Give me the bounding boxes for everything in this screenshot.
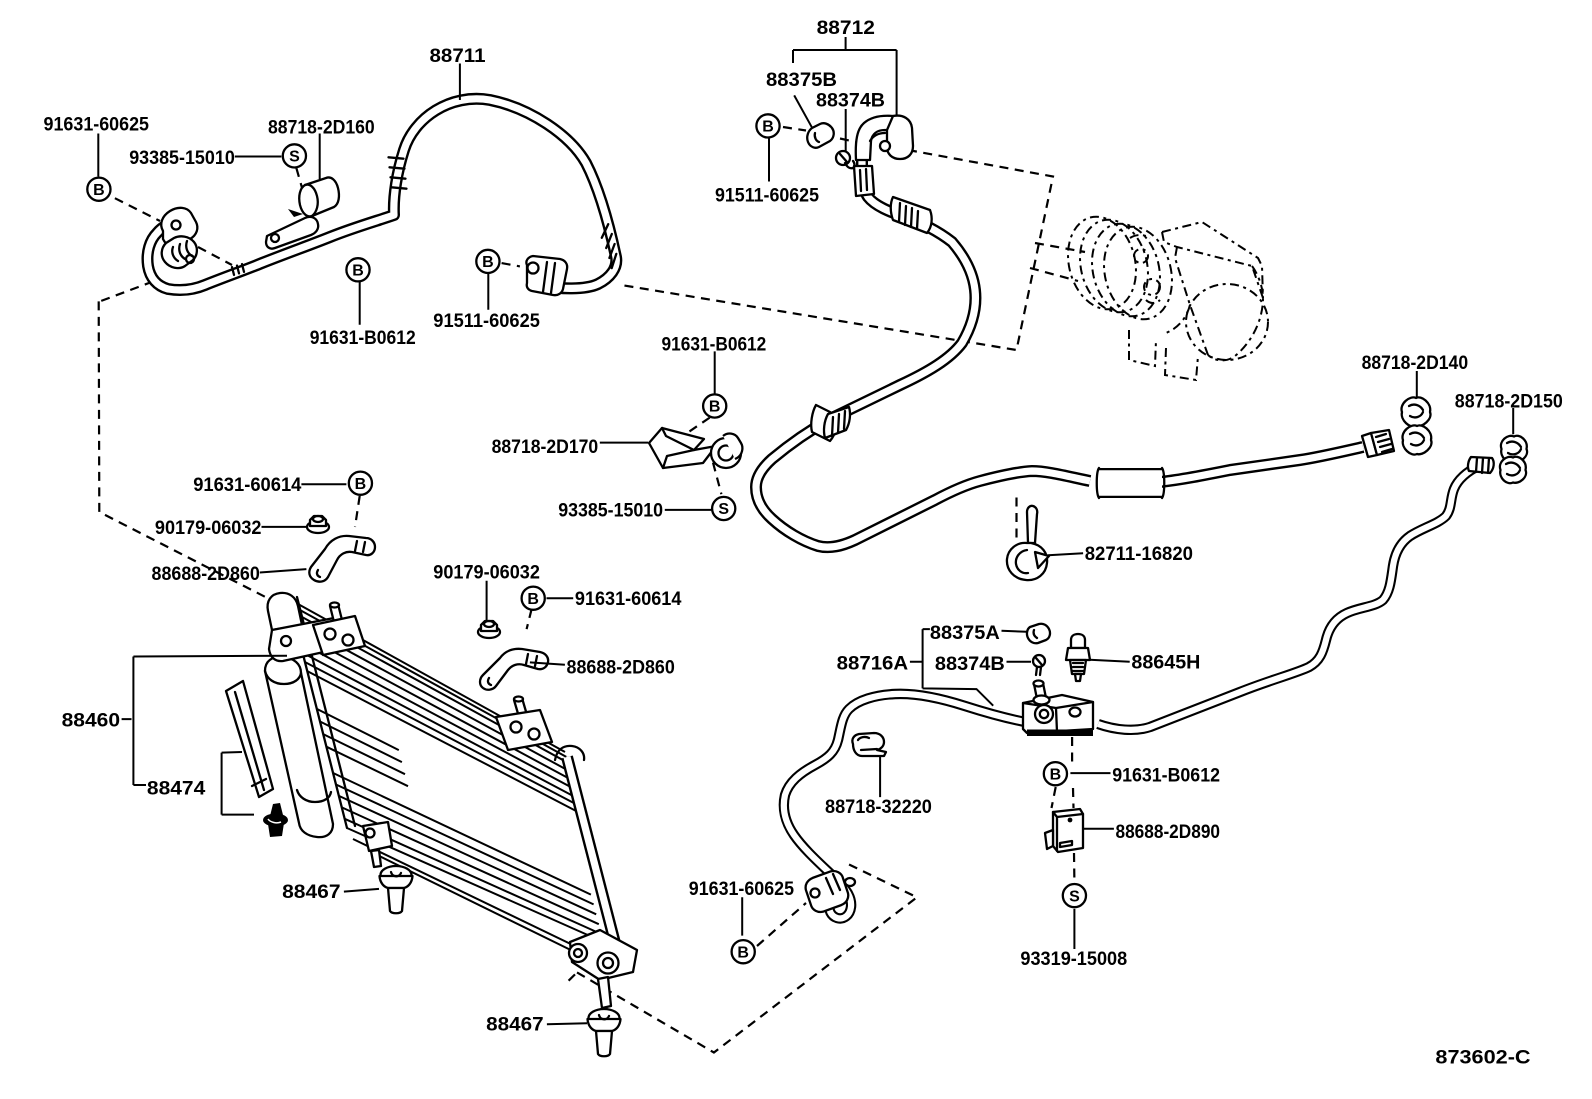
svg-text:B: B	[482, 254, 494, 271]
svg-text:88467: 88467	[282, 881, 341, 903]
svg-text:S: S	[289, 149, 300, 166]
svg-text:93385-15010: 93385-15010	[129, 147, 235, 169]
svg-text:90179-06032: 90179-06032	[433, 561, 540, 583]
svg-text:88374B: 88374B	[935, 653, 1005, 675]
svg-text:88474: 88474	[147, 778, 206, 800]
svg-text:88374B: 88374B	[816, 90, 885, 112]
svg-text:S: S	[1069, 888, 1080, 905]
svg-text:B: B	[737, 944, 749, 961]
svg-text:93385-15010: 93385-15010	[558, 500, 663, 522]
svg-text:88711: 88711	[430, 45, 486, 67]
svg-text:88375B: 88375B	[766, 69, 837, 91]
svg-text:B: B	[762, 119, 774, 136]
svg-text:91631-60614: 91631-60614	[193, 474, 301, 496]
svg-text:88375A: 88375A	[930, 622, 1000, 644]
svg-text:B: B	[93, 182, 105, 199]
svg-text:B: B	[355, 476, 367, 493]
svg-text:88688-2D890: 88688-2D890	[1116, 821, 1221, 843]
svg-text:91631-60625: 91631-60625	[689, 878, 794, 900]
svg-text:88718-2D170: 88718-2D170	[492, 436, 599, 458]
svg-text:88645H: 88645H	[1131, 651, 1200, 673]
svg-text:88718-2D140: 88718-2D140	[1362, 352, 1469, 374]
svg-text:82711-16820: 82711-16820	[1085, 543, 1193, 565]
svg-text:88712: 88712	[817, 17, 875, 39]
svg-text:S: S	[718, 501, 729, 518]
svg-text:91511-60625: 91511-60625	[715, 185, 819, 207]
svg-text:91631-B0612: 91631-B0612	[310, 327, 416, 349]
svg-text:88460: 88460	[62, 710, 121, 732]
svg-text:B: B	[1050, 766, 1062, 783]
svg-text:88688-2D860: 88688-2D860	[152, 563, 260, 585]
svg-text:88718-32220: 88718-32220	[825, 796, 932, 818]
svg-text:91631-B0612: 91631-B0612	[662, 334, 767, 356]
svg-text:88688-2D860: 88688-2D860	[567, 656, 675, 678]
svg-text:91631-B0612: 91631-B0612	[1112, 764, 1220, 786]
svg-text:90179-06032: 90179-06032	[155, 517, 262, 539]
svg-text:B: B	[527, 591, 539, 608]
svg-text:873602-C: 873602-C	[1435, 1046, 1530, 1068]
svg-text:88718-2D150: 88718-2D150	[1455, 391, 1563, 413]
svg-text:91631-60625: 91631-60625	[44, 114, 150, 136]
svg-text:88716A: 88716A	[837, 652, 909, 674]
svg-text:93319-15008: 93319-15008	[1020, 948, 1127, 970]
svg-text:91511-60625: 91511-60625	[433, 310, 540, 332]
svg-text:B: B	[352, 263, 364, 280]
svg-text:88467: 88467	[486, 1014, 543, 1036]
svg-text:88718-2D160: 88718-2D160	[268, 116, 375, 138]
svg-text:91631-60614: 91631-60614	[575, 588, 682, 610]
svg-text:B: B	[709, 399, 721, 416]
